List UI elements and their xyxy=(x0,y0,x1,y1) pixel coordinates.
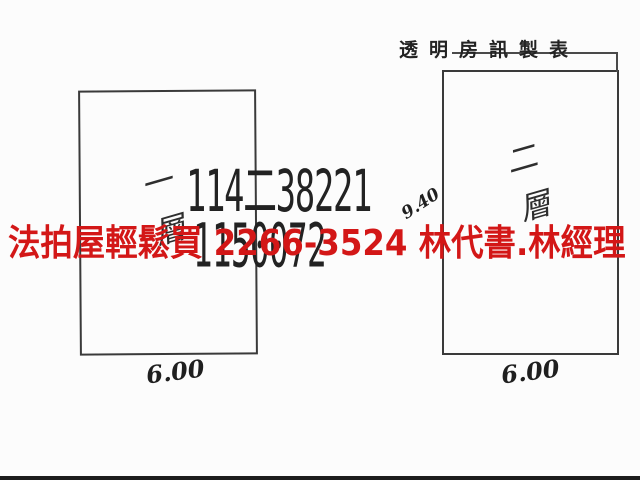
red-watermark-text: 法拍屋輕鬆買 2266-3524 林代書.林經理 xyxy=(8,214,625,266)
header-leader-line-vertical xyxy=(616,52,618,72)
scan-bottom-edge xyxy=(0,476,640,480)
scanned-floor-plan-sheet: 透明房訊製表 一層 6.00 二層 6.00 9.40 114二38221 11… xyxy=(0,0,640,480)
width-dimension-first-floor: 6.00 xyxy=(144,354,206,390)
sheet-header-title: 透明房訊製表 xyxy=(399,35,579,62)
width-dimension-second-floor: 6.00 xyxy=(499,354,561,390)
